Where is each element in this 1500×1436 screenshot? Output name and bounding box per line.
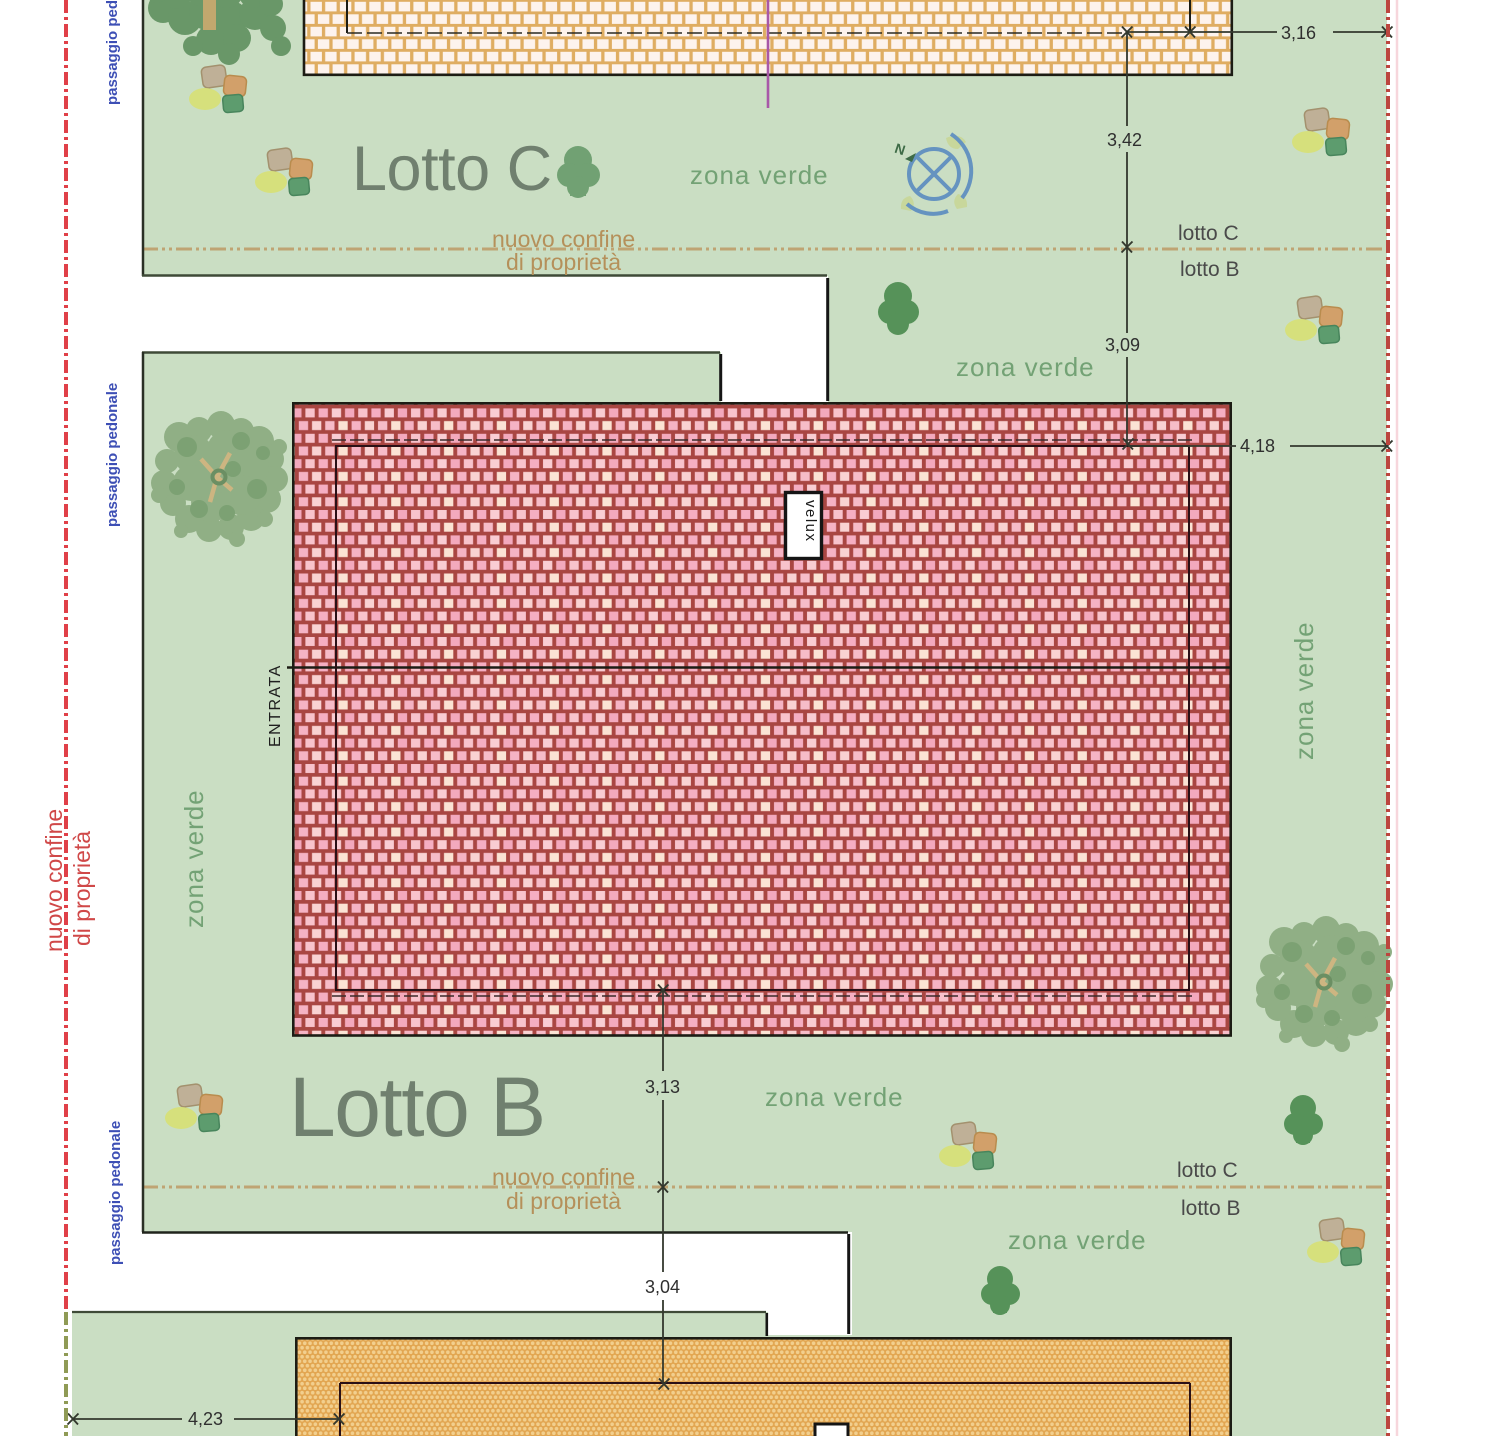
svg-text:zona verde: zona verde: [765, 1082, 904, 1112]
svg-text:4,18: 4,18: [1240, 436, 1275, 456]
svg-text:ENTRATA: ENTRATA: [267, 664, 284, 747]
svg-text:4,23: 4,23: [188, 1409, 223, 1429]
svg-text:lotto C: lotto C: [1178, 222, 1239, 245]
svg-text:3,42: 3,42: [1107, 130, 1142, 150]
svg-text:3,13: 3,13: [645, 1077, 680, 1097]
svg-text:zona verde: zona verde: [179, 789, 209, 928]
svg-text:passaggio pedonale: passaggio pedonale: [104, 383, 121, 527]
svg-text:di proprietà: di proprietà: [506, 249, 621, 275]
svg-text:zona verde: zona verde: [956, 352, 1095, 382]
svg-text:di proprietà: di proprietà: [69, 831, 95, 946]
svg-text:nuovo confine: nuovo confine: [41, 809, 67, 952]
svg-text:3,09: 3,09: [1105, 335, 1140, 355]
svg-text:lotto B: lotto B: [1180, 258, 1240, 281]
svg-text:di proprietà: di proprietà: [506, 1188, 621, 1214]
svg-text:Lotto C: Lotto C: [352, 134, 552, 204]
svg-text:zona verde: zona verde: [1008, 1225, 1147, 1255]
svg-text:lotto C: lotto C: [1177, 1159, 1238, 1182]
svg-text:passaggio pedonale: passaggio pedonale: [104, 0, 121, 105]
svg-text:zona verde: zona verde: [690, 160, 829, 190]
svg-text:3,16: 3,16: [1281, 23, 1316, 43]
svg-text:velux: velux: [802, 500, 819, 543]
svg-text:Lotto B: Lotto B: [289, 1060, 545, 1154]
svg-text:zona verde: zona verde: [1289, 621, 1319, 760]
svg-text:passaggio pedonale: passaggio pedonale: [107, 1121, 124, 1265]
svg-text:3,04: 3,04: [645, 1277, 680, 1297]
svg-text:nuovo confine: nuovo confine: [492, 1164, 635, 1190]
svg-text:lotto B: lotto B: [1181, 1197, 1241, 1220]
